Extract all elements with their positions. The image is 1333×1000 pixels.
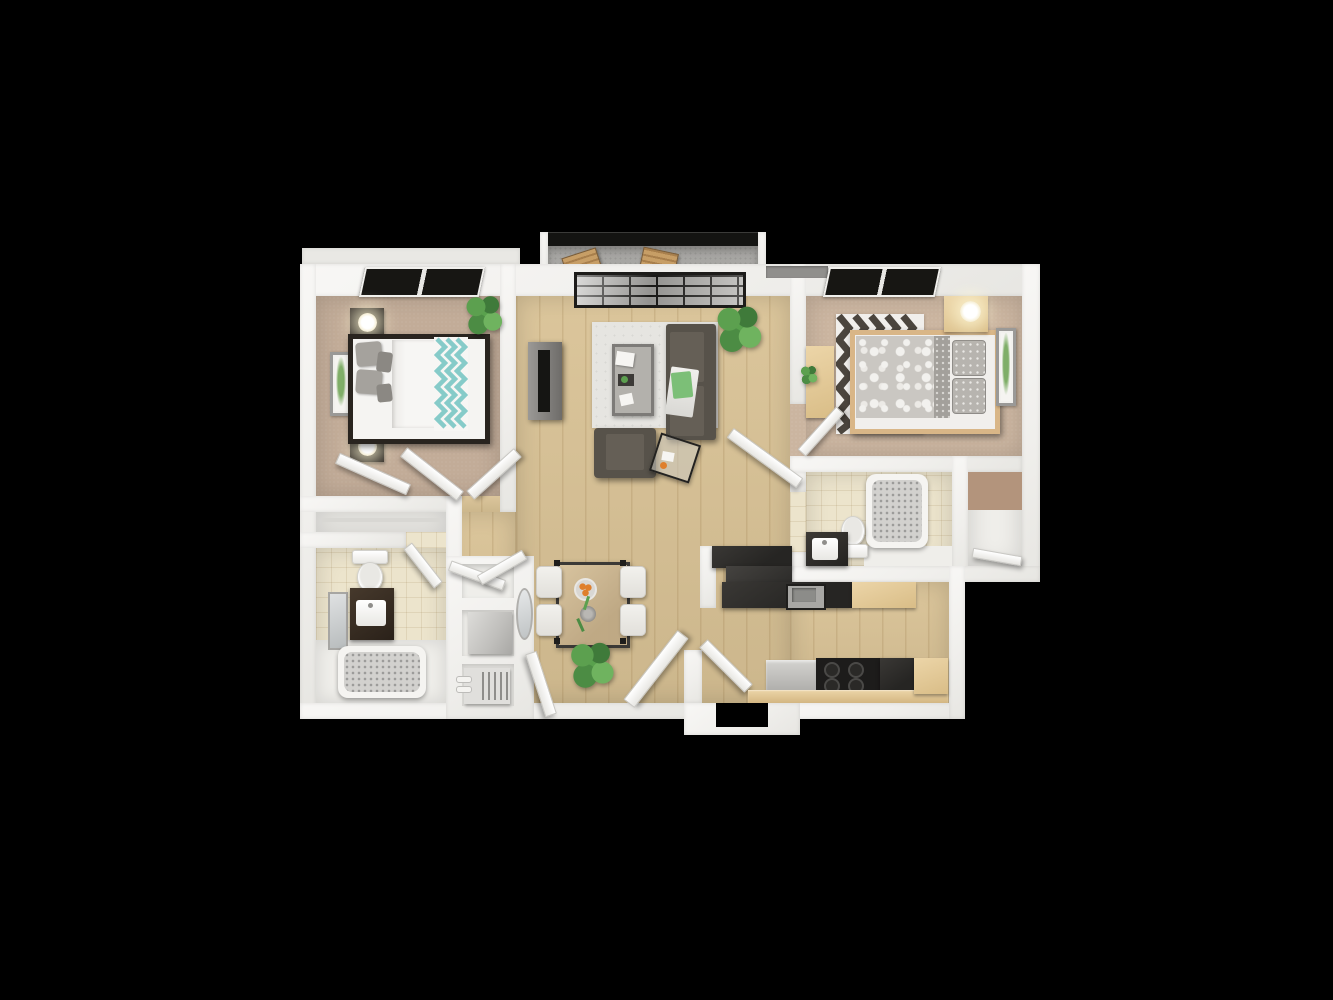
wall-bedroom-right-bath (790, 456, 1022, 472)
window-mullion (825, 269, 939, 295)
coffee-table-book (615, 351, 635, 367)
bed-right-runner (934, 336, 950, 418)
bed-left-cushion-1 (376, 351, 393, 373)
vanity-left-faucet (368, 603, 373, 608)
vanity-right-faucet (822, 540, 827, 545)
teal-chevron-throw (434, 337, 468, 431)
lamp-top (358, 313, 377, 332)
balcony-railing (544, 232, 762, 247)
art-canvas (335, 357, 347, 411)
kitchen-counter-right (880, 658, 914, 694)
bedroom-right-window (823, 267, 941, 297)
bathtub-left-basin (344, 652, 420, 692)
dining-table-knob-3 (554, 638, 560, 644)
living-room-plant (714, 302, 764, 356)
bathtub-left (338, 646, 426, 698)
kitchen-sink-basin (792, 588, 816, 602)
closet-right-back-carpet (968, 472, 1022, 510)
stove-burner-2 (848, 662, 864, 678)
bed-right-pillow-2 (952, 378, 986, 414)
side-table-book (661, 451, 674, 462)
wall-under-bedroom-left (300, 496, 458, 512)
bathroom-right-door-threshold (790, 492, 806, 552)
armchair-cushion (606, 434, 644, 470)
stove-burner-1 (824, 662, 840, 678)
kitchen-upper-wood-cabinet (852, 582, 916, 608)
water-heater-vents (482, 672, 508, 700)
wall-closet-left-bottom (300, 532, 406, 548)
wall-left (300, 264, 316, 719)
water-heater-pipe-2 (456, 686, 472, 693)
water-heater-pipe-1 (456, 676, 472, 683)
wall-parapet-top-left (302, 248, 520, 264)
sofa-throw-green (671, 371, 694, 399)
kitchen-wood-end-cabinet (914, 658, 948, 694)
entry-opening (716, 703, 768, 727)
dining-chair-3 (620, 566, 646, 598)
wall-bottom-right (783, 703, 965, 719)
wall-kitchen-right (949, 566, 965, 719)
dining-chair-1 (536, 566, 562, 598)
wall-bath-right-bottom (790, 566, 1040, 582)
dining-plant (568, 638, 616, 692)
dining-table-knob-4 (620, 638, 626, 644)
wall-bath-closet-divider (952, 456, 968, 582)
closet-left-shelf (322, 518, 440, 522)
bedroom-left-plant (464, 292, 504, 338)
desk-plant (800, 364, 818, 386)
closet-left-floor (316, 512, 446, 532)
bed-right-pillow-1 (952, 340, 986, 376)
bathroom-left-mirror (328, 592, 348, 650)
side-table-candle (660, 462, 667, 469)
bedroom-right-wall-art (996, 328, 1016, 406)
dining-chair-4 (620, 604, 646, 636)
kitchen-peninsula-upper (712, 546, 792, 568)
coffee-table-plant-sprig (621, 376, 628, 383)
dining-chair-2 (536, 604, 562, 636)
bed-right-duvet (856, 336, 934, 418)
kitchen-dishwasher (766, 660, 816, 692)
washer-unit (468, 612, 512, 654)
tv-screen (538, 350, 550, 412)
wall-right (1022, 264, 1040, 582)
bedroom-right-lamp (960, 301, 981, 322)
bathroom-right-lower-floor (864, 546, 952, 566)
bathtub-right-basin (872, 480, 922, 542)
wall-entry-stub (684, 650, 702, 703)
art-canvas (1001, 333, 1011, 401)
bathtub-right (866, 474, 928, 548)
oval-mirror (516, 588, 533, 640)
bed-left-duvet (392, 340, 438, 428)
hall-vent-ledge (766, 266, 828, 278)
bed-left-cushion-2 (376, 383, 393, 402)
dining-table (556, 562, 630, 648)
floor-plan-render (0, 0, 1333, 1000)
